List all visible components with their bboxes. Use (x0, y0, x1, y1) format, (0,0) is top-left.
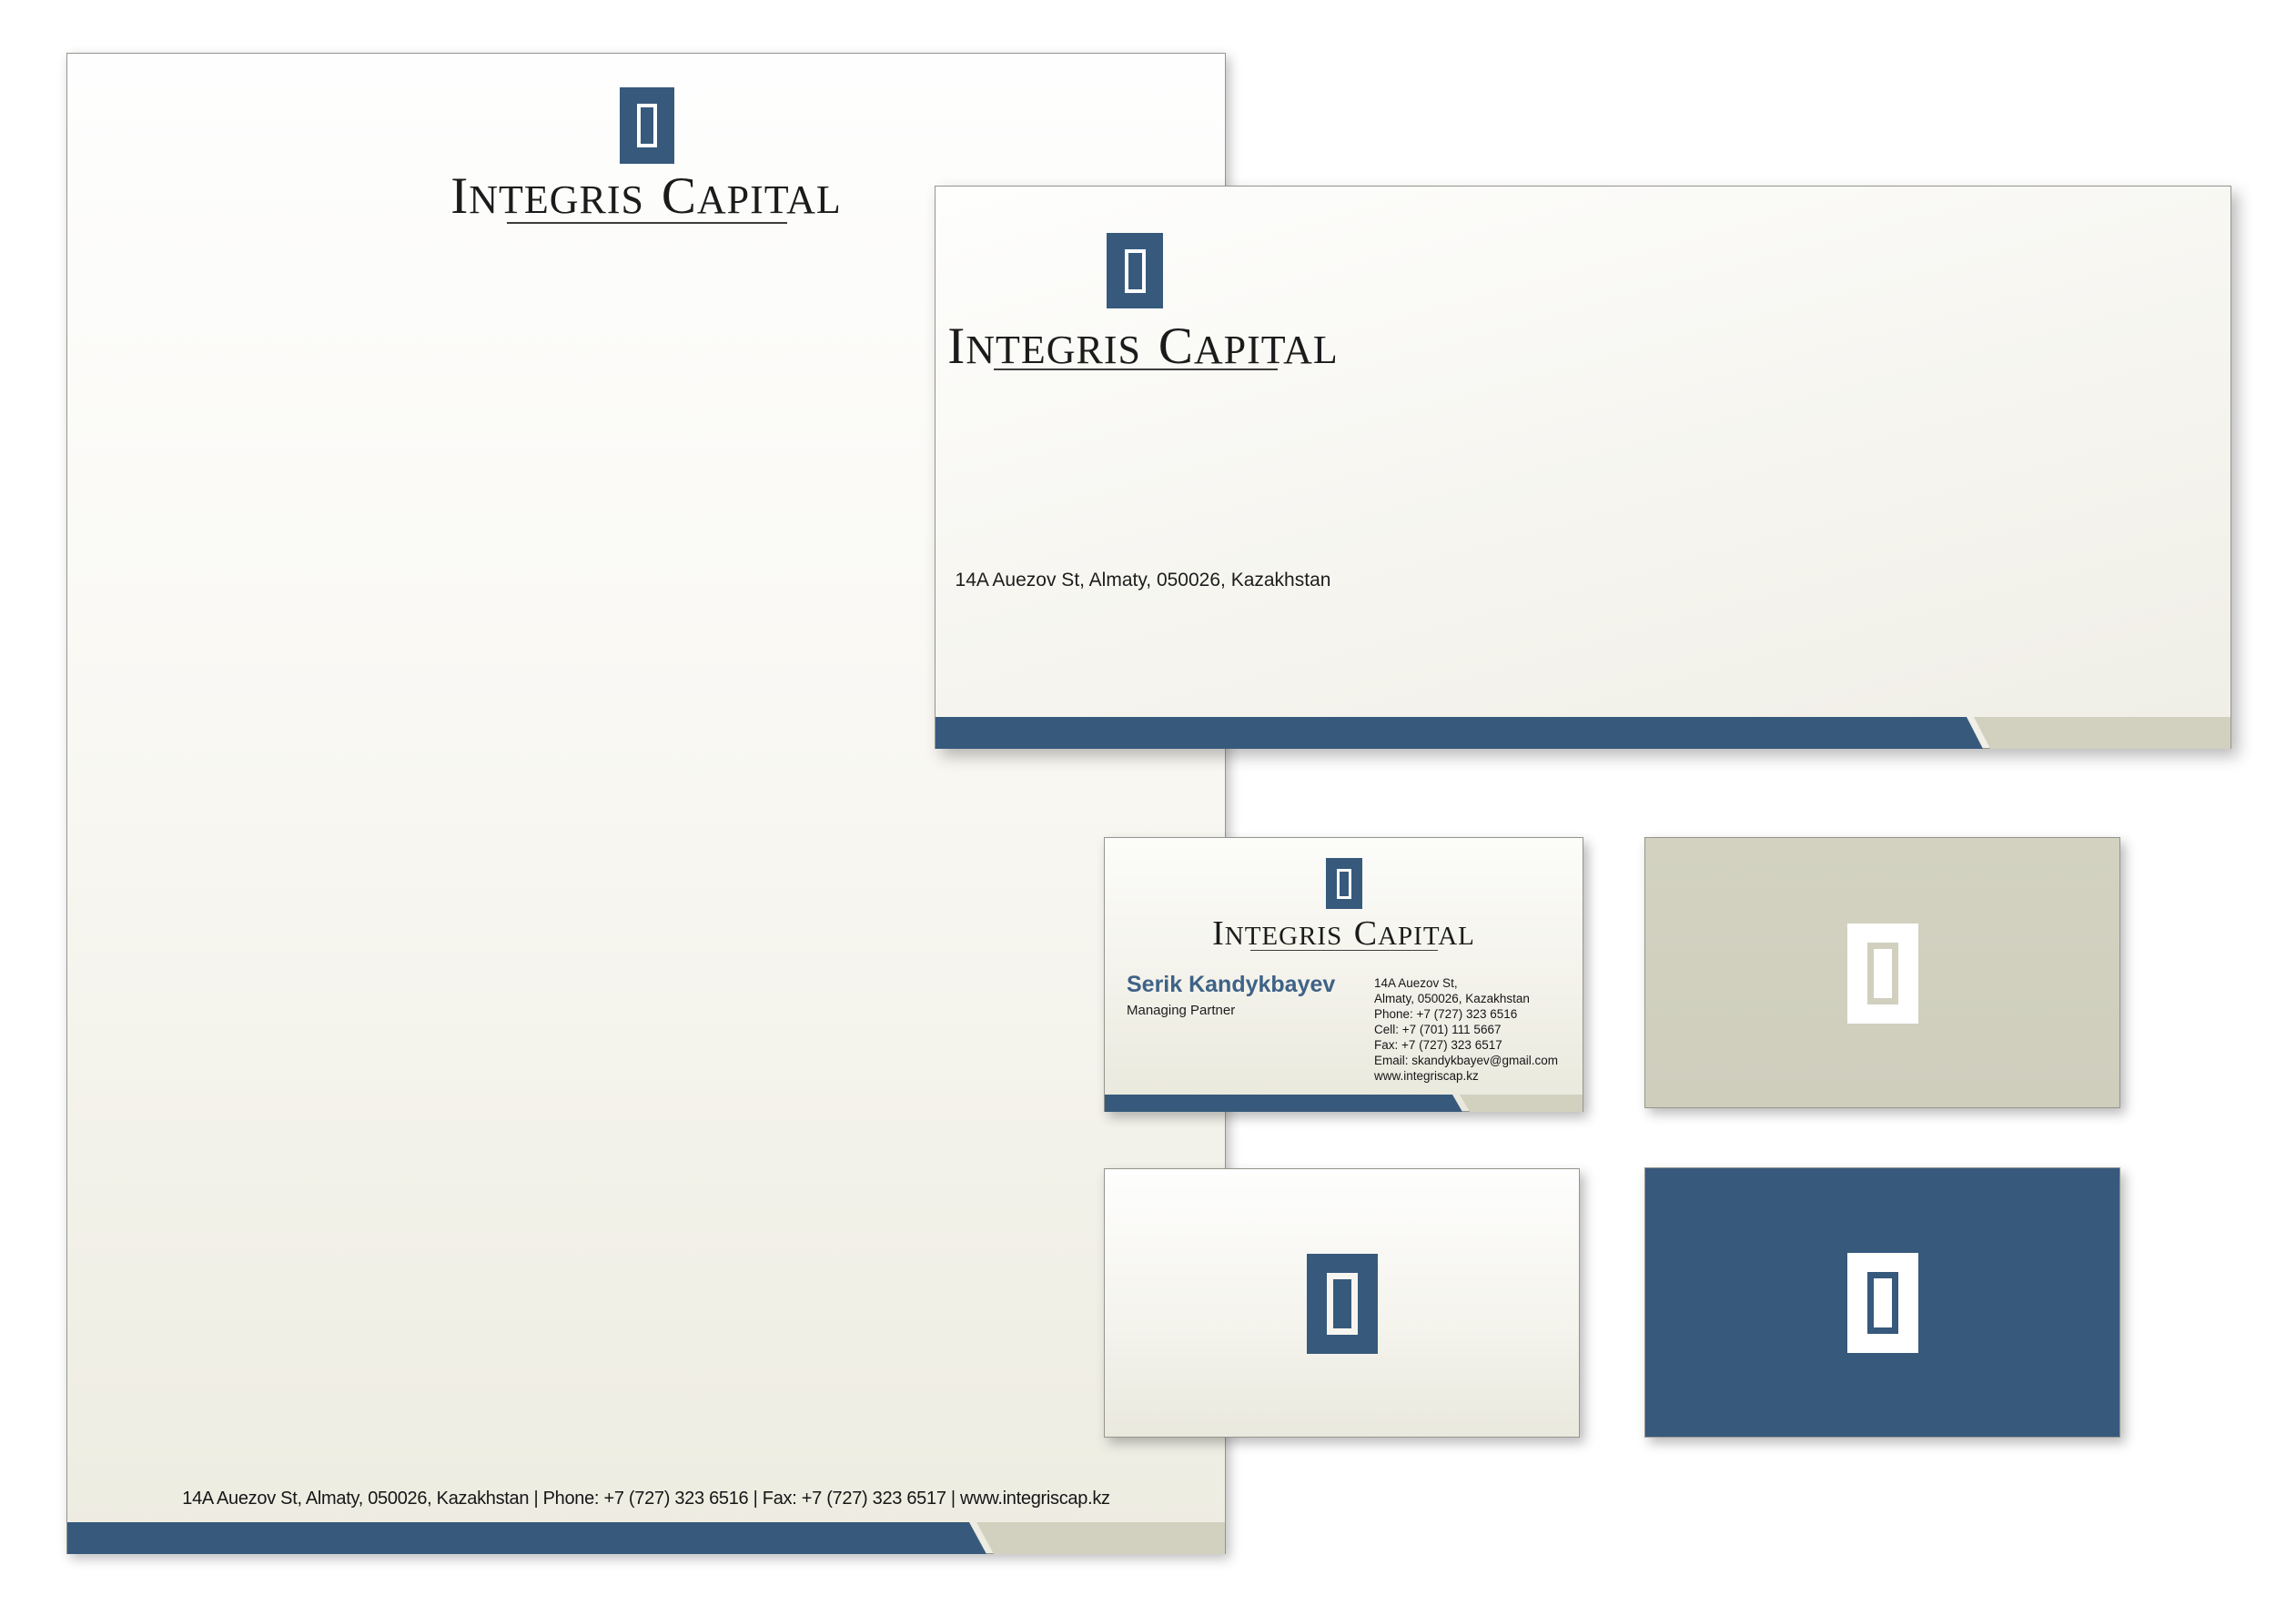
person-title: Managing Partner (1127, 1003, 1235, 1018)
logo-inner-frame (1337, 869, 1351, 899)
integris-logo-icon (1326, 858, 1362, 909)
logo-inner-frame (1867, 943, 1898, 1004)
card-contact-block: 14A Auezov St, Almaty, 050026, Kazakhsta… (1374, 975, 1558, 1084)
business-card-back-blue (1644, 1167, 2120, 1438)
contact-line-website: www.integriscap.kz (1374, 1068, 1558, 1084)
wordmark-initial: I (947, 318, 966, 375)
integris-wordmark: INTEGRISCAPITAL (1105, 916, 1583, 951)
envelope-bottom-bar (936, 717, 2230, 749)
integris-logo-icon (1307, 1254, 1378, 1354)
wordmark-initial: C (662, 167, 697, 225)
wordmark-initial: I (450, 167, 469, 225)
contact-line-phone: Phone: +7 (727) 323 6516 (1374, 1006, 1558, 1022)
wordmark-initial: I (1212, 914, 1225, 953)
contact-line-fax: Fax: +7 (727) 323 6517 (1374, 1037, 1558, 1053)
stationery-mockup-canvas: { "brand": { "name": "Integris Capital",… (0, 0, 2296, 1615)
integris-wordmark: INTEGRISCAPITAL (943, 320, 1343, 372)
letterhead-footer-text: 14A Auezov St, Almaty, 050026, Kazakhsta… (67, 1489, 1225, 1509)
business-card-back-white (1104, 1168, 1580, 1438)
logo-inner-frame (1867, 1272, 1898, 1334)
contact-line-address1: 14A Auezov St, (1374, 975, 1558, 991)
envelope: INTEGRISCAPITAL 14A Auezov St, Almaty, 0… (935, 186, 2231, 749)
wordmark-initial: C (1158, 318, 1194, 375)
envelope-address-text: 14A Auezov St, Almaty, 050026, Kazakhsta… (943, 570, 1343, 591)
business-card-front: INTEGRISCAPITAL Serik Kandykbayev Managi… (1104, 837, 1583, 1112)
wordmark-underline (507, 222, 787, 224)
business-card-back-beige (1644, 837, 2120, 1108)
logo-inner-frame (637, 104, 657, 147)
logo-inner-frame (1327, 1273, 1358, 1335)
integris-logo-icon (620, 87, 674, 164)
letterhead-footer-bar (67, 1522, 1225, 1554)
integris-logo-icon (1847, 924, 1918, 1024)
contact-line-email: Email: skandykbayev@gmail.com (1374, 1053, 1558, 1068)
integris-logo-icon (1107, 233, 1163, 308)
integris-logo-icon (1847, 1253, 1918, 1353)
contact-line-cell: Cell: +7 (701) 111 5667 (1374, 1022, 1558, 1037)
wordmark-underline (994, 368, 1278, 370)
wordmark-initial: C (1354, 914, 1378, 953)
logo-inner-frame (1125, 249, 1146, 293)
wordmark-underline (1250, 950, 1438, 951)
contact-line-address2: Almaty, 050026, Kazakhstan (1374, 991, 1558, 1006)
card-bottom-bar (1105, 1095, 1583, 1112)
person-name: Serik Kandykbayev (1127, 972, 1335, 998)
